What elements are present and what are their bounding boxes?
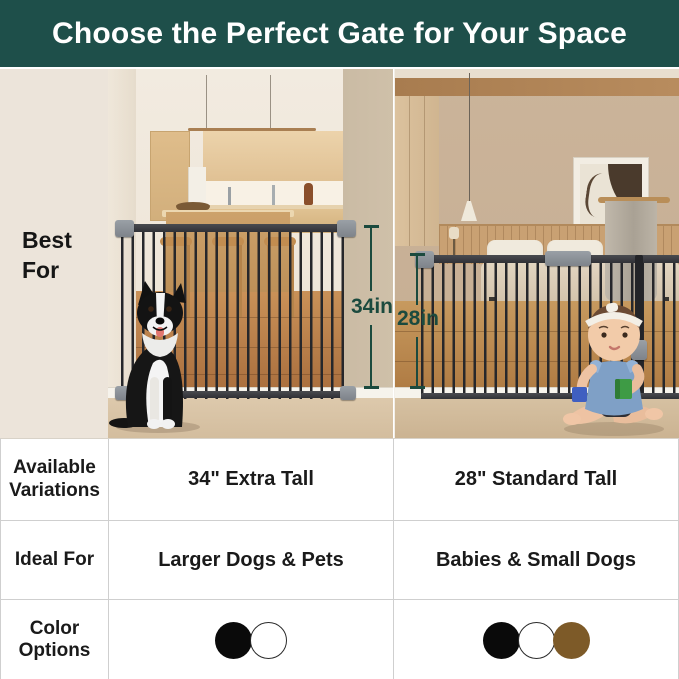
right-variation-value: 28" Standard Tall [393, 439, 678, 520]
pendant-cord [469, 73, 470, 203]
row-label-available-variations: Available Variations [1, 439, 108, 520]
gate-wall-mount [337, 220, 356, 237]
measure-line [370, 325, 372, 388]
right-ideal-for-value: Babies & Small Dogs [393, 520, 678, 599]
measure-line [416, 253, 418, 305]
page-title: Choose the Perfect Gate for Your Space [52, 17, 627, 51]
faucet [228, 187, 231, 205]
color-swatch [553, 622, 590, 659]
panel-seam [424, 96, 425, 246]
border-collie-dog [108, 275, 208, 435]
faucet [272, 185, 275, 205]
measure-cap-bottom [410, 386, 425, 389]
measure-line [416, 337, 418, 388]
right-color-options-cell [393, 599, 678, 679]
height-label-28in: 28in [397, 307, 439, 331]
product-infographic: Choose the Perfect Gate for Your Space B… [0, 0, 679, 679]
color-swatch [250, 622, 287, 659]
bedroom-baby-photo: 28in [394, 69, 679, 438]
measure-line [370, 225, 372, 291]
left-color-options-cell [108, 599, 393, 679]
pendant-cord [270, 75, 271, 129]
header-banner: Choose the Perfect Gate for Your Space [0, 0, 679, 67]
gate-top-rail [121, 224, 351, 232]
fruit-bowl [176, 202, 210, 210]
kitchen-dog-photo: 34in [108, 69, 393, 438]
ceiling [395, 69, 679, 78]
row-label-color-options: Color Options [1, 599, 108, 679]
left-variation-value: 34" Extra Tall [108, 439, 393, 520]
height-label-34in: 34in [351, 295, 393, 319]
pendant-cord [206, 75, 207, 129]
color-swatch [483, 622, 520, 659]
best-for-label: Best For [22, 225, 72, 286]
row-label-ideal-for: Ideal For [1, 520, 108, 599]
comparison-table: Available Variations 34" Extra Tall 28" … [0, 438, 679, 679]
color-swatch [215, 622, 252, 659]
measure-cap-bottom [364, 386, 379, 389]
gate-wall-mount [115, 220, 134, 237]
table-lamp [449, 227, 459, 239]
right-color-swatches [484, 622, 589, 659]
left-color-swatches [216, 622, 286, 659]
color-swatch [518, 622, 555, 659]
baby-illustration [553, 297, 675, 437]
gate-latch-handle [545, 251, 591, 266]
wood-beam [395, 78, 679, 96]
gate-foot-mount [340, 386, 356, 400]
upper-cabinets [203, 131, 343, 183]
left-ideal-for-value: Larger Dogs & Pets [108, 520, 393, 599]
wood-wall-panel [395, 96, 439, 246]
bottle [304, 183, 313, 205]
panel-seam [409, 96, 410, 246]
best-for-sidebar: Best For [0, 69, 108, 438]
